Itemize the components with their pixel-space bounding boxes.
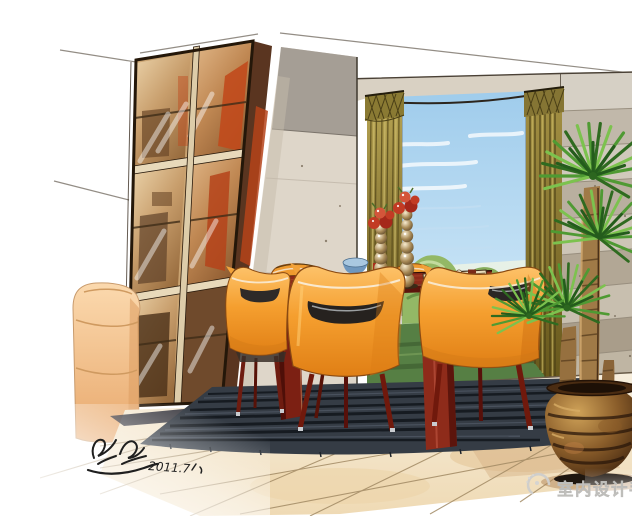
dining-chair-center — [288, 263, 405, 432]
signature-date: 2011.7 — [148, 459, 191, 476]
interior-marker-rendering: 2011.7 室内设计手绘 — [40, 16, 632, 516]
rendering-canvas: 2011.7 室内设计手绘 — [40, 16, 632, 516]
watermark-text: 室内设计手绘 — [557, 479, 632, 499]
